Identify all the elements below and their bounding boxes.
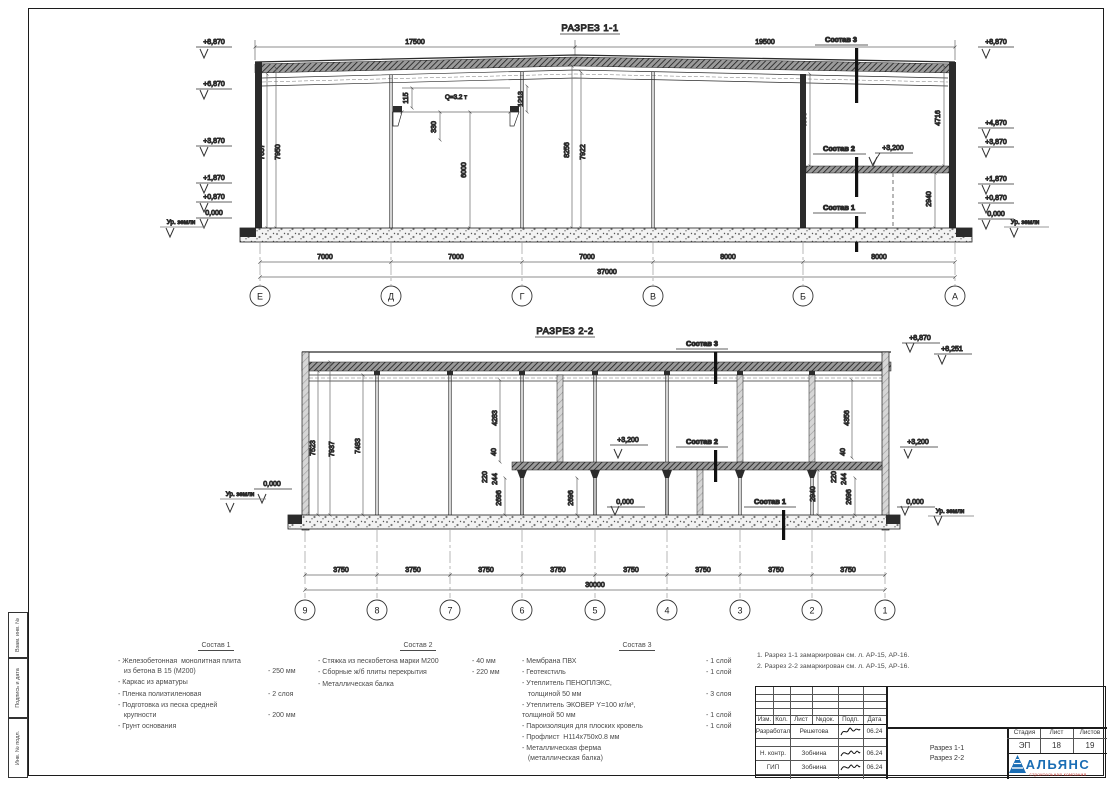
company-logo: АЛЬЯНС строительная компания [1009, 755, 1107, 779]
dim-span: 3750 [333, 567, 349, 574]
name-cell: Решетова [790, 724, 838, 738]
col-header-izm: Изм. [756, 715, 773, 724]
sections-drawing: РАЗРЕЗ 1-1 17500 19500 [0, 0, 1114, 632]
drawing-sheet: { "frame": { "side_stamp": { "cells": ["… [0, 0, 1114, 786]
dim-7657: 7657 [259, 144, 266, 160]
section-1-1: РАЗРЕЗ 1-1 17500 19500 [160, 23, 1049, 306]
ground-level-label: Ур. земли [1011, 219, 1040, 226]
composition-2-title: Состав 2 [318, 641, 518, 651]
dim-total-30000: 30000 [585, 582, 605, 589]
dim-2940: 2940 [926, 191, 933, 207]
crane-capacity-label: Q=3.2 т [445, 94, 467, 101]
list-item: - Металлическая балка [318, 680, 518, 690]
axis-label: 8 [374, 606, 379, 616]
list-item: - Подготовка из песка средней крупности-… [118, 701, 314, 721]
dim-2940: 2940 [810, 486, 817, 502]
dim-244: 244 [841, 473, 848, 485]
dim-220: 220 [831, 471, 838, 483]
callout-sostav-1: Состав 1 [754, 497, 786, 506]
date-cell: 06.24 [863, 724, 886, 738]
section-2-2: РАЗРЕЗ 2-2 [220, 326, 974, 620]
list-item: - Профлист Н114х750х0.8 мм [522, 733, 752, 743]
composition-1-title: Состав 1 [118, 641, 314, 651]
dim-8256: 8256 [564, 142, 571, 158]
elev-mark: 0,000 [263, 481, 281, 488]
dim-span: 7000 [579, 254, 595, 261]
ground-level-label: Ур. земли [167, 219, 196, 226]
dim-span: 3750 [478, 567, 494, 574]
list-item: - Каркас из арматуры [118, 678, 314, 688]
axis-label: 9 [302, 606, 307, 616]
composition-2-block: Состав 2 - Стяжка из пескобетона марки М… [318, 641, 518, 692]
name-cell: Зобнина [790, 760, 838, 774]
elev-mark: +8,870 [909, 335, 931, 342]
elev-mark: +4,870 [985, 120, 1007, 127]
axis-bubbles-1-1 [250, 286, 965, 306]
sheets-value: 19 [1073, 738, 1107, 753]
dim-2696: 2696 [846, 489, 853, 505]
elev-mark: +3,870 [203, 138, 225, 145]
dim-span: 8000 [871, 254, 887, 261]
elev-mark: +3,870 [985, 139, 1007, 146]
dim-span: 7000 [317, 254, 333, 261]
col-header-kol: Кол. [773, 715, 790, 724]
dim-330: 330 [431, 121, 438, 133]
elev-mark: 0,000 [987, 211, 1005, 218]
list-item: - Сборные ж/б плиты перекрытия- 220 мм [318, 668, 518, 678]
elev-mark: +8,251 [941, 346, 963, 353]
dim-4855: 4855 [801, 112, 808, 128]
dim-total-37000: 37000 [597, 269, 617, 276]
note-line: 2. Разрез 2-2 замаркирован см. л. АР-15,… [757, 662, 1027, 673]
dim-span: 3750 [623, 567, 639, 574]
dim-7950: 7950 [275, 144, 282, 160]
dim-4356: 4356 [844, 410, 851, 426]
logo-text: АЛЬЯНС [1026, 758, 1091, 771]
side-stamp-cell: Подпись и дата [8, 658, 28, 718]
callout-sostav-1: Состав 1 [823, 203, 855, 212]
col-header-list: Лист [790, 715, 812, 724]
elev-mark: +1,870 [985, 176, 1007, 183]
list-item: - Железобетонная монолитная плита из бет… [118, 657, 314, 677]
signature [840, 748, 861, 759]
signature [840, 726, 861, 737]
axis-label: 4 [664, 606, 669, 616]
elev-mark: 0,000 [205, 210, 223, 217]
elev-mark: +6,870 [203, 81, 225, 88]
composition-3-title: Состав 3 [522, 641, 752, 651]
callout-sostav-3: Состав 3 [825, 35, 857, 44]
dim-2696: 2696 [568, 490, 575, 506]
dim-220: 220 [482, 471, 489, 483]
date-cell: 06.24 [863, 746, 886, 760]
logo-triangle-icon [1009, 755, 1026, 773]
elevation-3200: +3,200 [882, 145, 904, 152]
elevations-left-1-1: +8,870 +6,870 +3,870 +1,870 +0,870 0,000… [160, 39, 232, 237]
col-header-podp: Подп. [838, 715, 863, 724]
notes-block: 1. Разрез 1-1 замаркирован см. л. АР-15,… [757, 651, 1027, 673]
elevations-right-1-1: +8,870 +4,870 +3,870 +1,870 +0,870 0,000… [978, 39, 1049, 237]
composition-1-block: Состав 1 - Железобетонная монолитная пли… [118, 641, 314, 733]
elev-mark: +0,870 [203, 194, 225, 201]
side-stamp-cell: Инв. № подл. [8, 718, 28, 778]
list-item: - Металлическая ферма (металлическая бал… [522, 744, 752, 764]
role-cell: ГИП [756, 760, 790, 774]
axis-label: Б [800, 292, 806, 302]
role-cell: Н. контр. [756, 746, 790, 760]
dim-4716: 4716 [935, 110, 942, 126]
stage-label: Стадия [1009, 727, 1040, 738]
sheet-label: Лист [1040, 727, 1073, 738]
title-block: Изм. Кол. Лист №док. Подп. Дата Разработ… [755, 686, 1106, 778]
dim-7483: 7483 [355, 438, 362, 454]
document-title: Разрез 1-1Разрез 2-2 [887, 729, 1007, 779]
axis-label: 7 [447, 606, 452, 616]
dim-1213: 1213 [518, 91, 525, 107]
name-cell: Зобнина [790, 746, 838, 760]
ground-level-label: Ур. земли [936, 508, 965, 515]
note-line: 1. Разрез 1-1 замаркирован см. л. АР-15,… [757, 651, 1027, 662]
dim-span: 3750 [840, 567, 856, 574]
dim-17500: 17500 [405, 39, 425, 46]
list-item: - Пароизоляция для плоских кровель- 1 сл… [522, 722, 752, 732]
dim-span: 7000 [448, 254, 464, 261]
role-cell: Разработал [756, 724, 790, 738]
dim-span: 3750 [550, 567, 566, 574]
elev-mark: +1,870 [203, 175, 225, 182]
dim-7523: 7523 [310, 440, 317, 456]
callout-sostav-2: Состав 2 [823, 144, 855, 153]
dim-span: 3750 [695, 567, 711, 574]
axis-label: Е [257, 292, 263, 302]
dim-6000: 6000 [461, 162, 468, 178]
elev-mark: +8,870 [985, 39, 1007, 46]
dim-2696: 2696 [496, 490, 503, 506]
axis-label: 1 [882, 606, 887, 616]
axis-label: А [952, 292, 958, 302]
dim-115: 115 [403, 92, 410, 103]
composition-3-block: Состав 3 - Мембрана ПВХ- 1 слой - Геотек… [522, 641, 752, 766]
elev-mark: +8,870 [203, 39, 225, 46]
logo-subtitle: строительная компания [1029, 772, 1086, 777]
axis-label: В [650, 292, 656, 302]
dim-7922: 7922 [580, 144, 587, 160]
signature [840, 762, 861, 773]
callout-sostav-3: Состав 3 [686, 339, 718, 348]
axis-label: 5 [592, 606, 597, 616]
elev-mark: +0,870 [985, 195, 1007, 202]
axis-label: Г [520, 292, 525, 302]
axis-label: 2 [809, 606, 814, 616]
side-stamp-cell: Взам. инв. № [8, 612, 28, 658]
elev-mark: +3,200 [617, 437, 639, 444]
dim-244: 244 [492, 473, 499, 485]
dim-span: 3750 [768, 567, 784, 574]
dim-7937: 7937 [329, 441, 336, 457]
callout-sostav-2: Состав 2 [686, 437, 718, 446]
list-item: - Утеплитель ПЕНОПЛЭКС, толщиной 50 мм- … [522, 679, 752, 699]
sheet-value: 18 [1040, 738, 1073, 753]
axis-label: 3 [737, 606, 742, 616]
list-item: - Мембрана ПВХ- 1 слой [522, 657, 752, 667]
dim-span: 3750 [405, 567, 421, 574]
dim-40: 40 [491, 448, 498, 456]
list-item: - Грунт основания [118, 722, 314, 732]
list-item: - Стяжка из пескобетона марки М200- 40 м… [318, 657, 518, 667]
list-item: - Утеплитель ЭКОВЕР Y=100 кг/м³, толщино… [522, 701, 752, 721]
elev-mark: +3,200 [907, 439, 929, 446]
axis-label: Д [388, 292, 394, 302]
col-header-data: Дата [863, 715, 886, 724]
dim-19500: 19500 [755, 39, 775, 46]
elevations-right-2-2: +8,870 +8,251 +3,200 0,000 Ур. земли [897, 335, 974, 525]
list-item: - Пленка полиэтиленовая- 2 слоя [118, 690, 314, 700]
stage-value: ЭП [1009, 738, 1040, 753]
dim-4283: 4283 [492, 410, 499, 426]
ground-level-label: Ур. земли [226, 491, 255, 498]
elev-mark: 0,000 [906, 499, 924, 506]
dim-span: 8000 [720, 254, 736, 261]
section-1-1-title: РАЗРЕЗ 1-1 [561, 23, 618, 34]
col-header-ndok: №док. [812, 715, 838, 724]
section-2-2-title: РАЗРЕЗ 2-2 [536, 326, 593, 337]
dim-40: 40 [840, 448, 847, 456]
elev-mark: 0,000 [616, 499, 634, 506]
sheets-label: Листов [1073, 727, 1107, 738]
axis-label: 6 [519, 606, 524, 616]
date-cell: 06.24 [863, 760, 886, 774]
list-item: - Геотекстиль- 1 слой [522, 668, 752, 678]
